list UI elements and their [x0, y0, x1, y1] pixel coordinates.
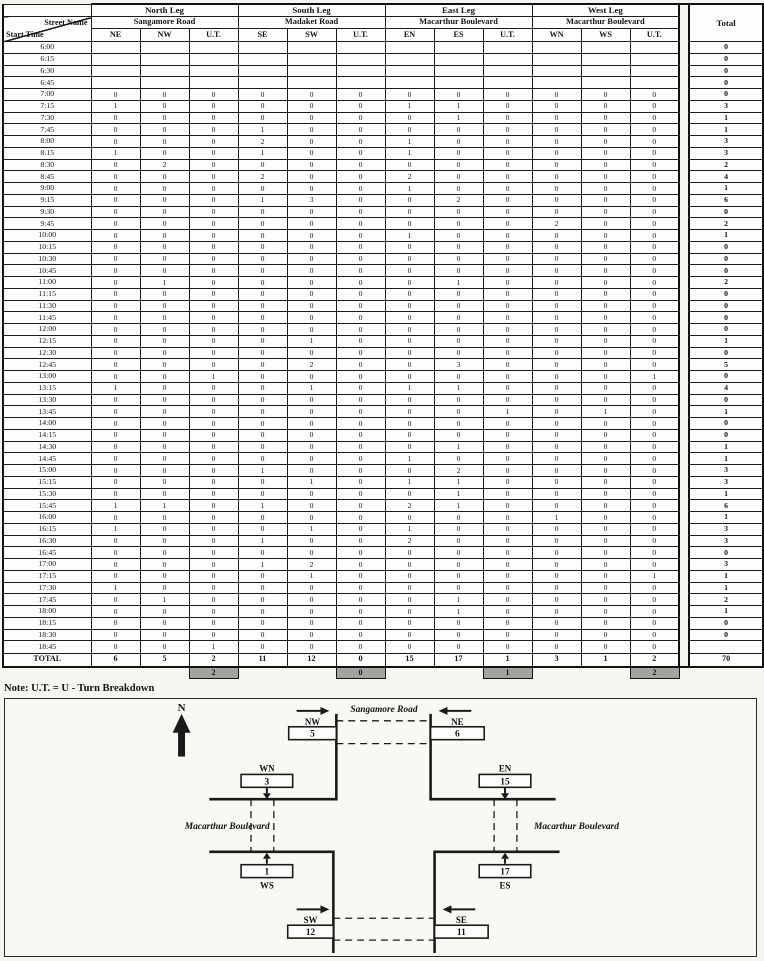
count-cell: 0	[140, 570, 189, 582]
count-cell: 0	[287, 394, 336, 406]
count-row: 12:450000200300005	[3, 359, 763, 371]
intersection-diagram-svg: N Sangamore Road Macarthur Boulevard Mac…	[5, 699, 753, 953]
count-cell: 0	[385, 629, 434, 641]
count-row: 11:450000000000000	[3, 312, 763, 324]
count-cell	[336, 42, 385, 54]
count-cell: 0	[336, 312, 385, 324]
count-cell: 0	[385, 606, 434, 618]
count-cell: 0	[483, 300, 532, 312]
corner-blank-cell	[3, 4, 91, 17]
count-cell: 0	[385, 159, 434, 171]
count-cell: 0	[385, 194, 434, 206]
count-cell: 0	[630, 453, 679, 465]
count-cell: 0	[140, 617, 189, 629]
count-cell: 0	[91, 288, 140, 300]
count-row: 8:450002002000004	[3, 171, 763, 183]
row-total-cell: 1	[689, 512, 763, 524]
count-cell: 0	[287, 206, 336, 218]
count-cell: 2	[287, 559, 336, 571]
count-cell: 0	[189, 89, 238, 101]
column-gap	[679, 194, 689, 206]
count-cell: 0	[238, 629, 287, 641]
count-cell: 0	[532, 582, 581, 594]
count-cell: 0	[336, 277, 385, 289]
count-cell: 0	[238, 418, 287, 430]
count-cell: 1	[434, 594, 483, 606]
row-total-cell: 3	[689, 136, 763, 148]
row-total-cell: 2	[689, 277, 763, 289]
row-total-cell: 4	[689, 382, 763, 394]
count-cell: 0	[91, 418, 140, 430]
count-cell: 0	[287, 418, 336, 430]
count-table: North Leg South Leg East Leg West Leg To…	[2, 3, 764, 679]
north-street-header: Sangamore Road	[91, 17, 238, 29]
start-time-cell: 7:15	[3, 100, 91, 112]
count-cell: 0	[483, 523, 532, 535]
count-cell: 0	[189, 394, 238, 406]
count-cell: 1	[140, 277, 189, 289]
row-total-cell: 0	[689, 629, 763, 641]
count-cell: 0	[630, 265, 679, 277]
count-cell: 0	[336, 488, 385, 500]
count-cell: 0	[483, 253, 532, 265]
count-row: 15:300000000100001	[3, 488, 763, 500]
count-cell: 0	[91, 512, 140, 524]
count-cell: 0	[238, 183, 287, 195]
count-cell: 0	[238, 488, 287, 500]
count-cell: 0	[630, 394, 679, 406]
count-cell	[238, 65, 287, 77]
count-cell: 1	[385, 183, 434, 195]
count-cell: 0	[385, 547, 434, 559]
count-cell	[238, 42, 287, 54]
count-cell: 0	[483, 147, 532, 159]
count-cell: 0	[532, 617, 581, 629]
count-cell: 0	[483, 476, 532, 488]
count-cell: 0	[630, 183, 679, 195]
ne-count-box: NE 6	[431, 707, 485, 740]
column-gap	[679, 653, 689, 667]
column-total-cell: 12	[287, 653, 336, 667]
count-cell	[483, 42, 532, 54]
count-cell	[581, 42, 630, 54]
count-cell: 0	[189, 382, 238, 394]
count-cell: 0	[532, 288, 581, 300]
count-cell: 0	[630, 300, 679, 312]
column-gap	[679, 606, 689, 618]
count-row: 12:000000000000000	[3, 324, 763, 336]
count-cell	[434, 65, 483, 77]
count-cell: 0	[581, 371, 630, 383]
count-cell: 0	[434, 559, 483, 571]
count-cell: 0	[630, 582, 679, 594]
count-cell: 0	[189, 312, 238, 324]
start-time-cell: 8:30	[3, 159, 91, 171]
count-cell: 0	[483, 629, 532, 641]
count-cell: 0	[336, 523, 385, 535]
count-cell: 0	[581, 277, 630, 289]
count-cell: 0	[140, 206, 189, 218]
count-cell: 0	[336, 617, 385, 629]
count-cell: 0	[140, 465, 189, 477]
count-cell: 0	[189, 406, 238, 418]
start-time-cell: 12:45	[3, 359, 91, 371]
count-cell: 1	[91, 382, 140, 394]
count-cell: 0	[238, 441, 287, 453]
count-cell: 0	[385, 300, 434, 312]
count-cell	[434, 42, 483, 54]
nw-direction-arrow-icon	[320, 707, 329, 715]
intersection-diagram: N Sangamore Road Macarthur Boulevard Mac…	[4, 698, 757, 957]
count-cell: 0	[140, 147, 189, 159]
count-cell: 0	[483, 335, 532, 347]
count-cell	[287, 53, 336, 65]
count-cell: 0	[238, 112, 287, 124]
start-time-cell: 10:00	[3, 230, 91, 242]
row-total-cell: 1	[689, 606, 763, 618]
north-arrow-head	[173, 714, 191, 733]
count-cell: 0	[189, 112, 238, 124]
count-cell: 0	[189, 171, 238, 183]
start-time-cell: 17:45	[3, 594, 91, 606]
count-cell: 0	[336, 265, 385, 277]
count-cell: 0	[581, 241, 630, 253]
count-cell: 0	[91, 312, 140, 324]
column-gap	[679, 53, 689, 65]
count-cell: 0	[532, 394, 581, 406]
count-cell: 0	[238, 89, 287, 101]
count-cell: 0	[287, 312, 336, 324]
count-cell: 0	[630, 100, 679, 112]
count-cell	[287, 65, 336, 77]
start-time-cell: 18:45	[3, 641, 91, 653]
count-cell: 0	[287, 89, 336, 101]
count-cell: 0	[336, 629, 385, 641]
start-time-cell: 11:45	[3, 312, 91, 324]
count-cell: 0	[287, 253, 336, 265]
count-cell: 0	[287, 218, 336, 230]
count-cell: 0	[581, 476, 630, 488]
start-time-cell: 6:00	[3, 42, 91, 54]
count-cell: 0	[189, 441, 238, 453]
count-cell: 0	[238, 382, 287, 394]
start-time-cell: 12:00	[3, 324, 91, 336]
count-cell	[630, 42, 679, 54]
count-cell: 0	[581, 594, 630, 606]
count-cell: 0	[336, 206, 385, 218]
count-cell: 0	[532, 312, 581, 324]
count-cell: 0	[91, 335, 140, 347]
count-cell	[91, 77, 140, 89]
count-cell: 0	[581, 570, 630, 582]
column-gap	[679, 147, 689, 159]
count-cell: 0	[630, 594, 679, 606]
row-total-cell: 1	[689, 441, 763, 453]
count-cell: 0	[336, 124, 385, 136]
count-cell: 0	[140, 265, 189, 277]
count-cell: 0	[581, 641, 630, 653]
count-row: 13:450000000010101	[3, 406, 763, 418]
count-cell: 0	[336, 100, 385, 112]
count-cell: 0	[140, 89, 189, 101]
count-cell: 0	[287, 277, 336, 289]
count-cell: 0	[91, 253, 140, 265]
count-cell: 0	[532, 206, 581, 218]
count-cell: 1	[91, 100, 140, 112]
count-cell: 0	[336, 230, 385, 242]
count-cell: 1	[238, 124, 287, 136]
count-cell: 1	[385, 453, 434, 465]
count-cell: 0	[434, 570, 483, 582]
count-row: 12:150000100000001	[3, 335, 763, 347]
count-cell: 0	[630, 441, 679, 453]
count-cell: 0	[532, 171, 581, 183]
count-cell: 0	[532, 241, 581, 253]
count-cell: 0	[189, 300, 238, 312]
count-cell: 0	[532, 523, 581, 535]
count-cell: 0	[189, 629, 238, 641]
column-total-cell: 2	[189, 653, 238, 667]
count-cell: 0	[483, 418, 532, 430]
count-cell: 0	[238, 606, 287, 618]
column-gap	[679, 441, 689, 453]
count-cell: 0	[532, 606, 581, 618]
start-time-cell: 13:00	[3, 371, 91, 383]
es-count-value: 17	[500, 868, 510, 878]
count-cell: 0	[483, 594, 532, 606]
count-cell: 0	[238, 641, 287, 653]
count-cell: 0	[91, 617, 140, 629]
count-cell: 0	[238, 359, 287, 371]
column-total-cell: 3	[532, 653, 581, 667]
count-cell: 0	[630, 324, 679, 336]
row-total-cell: 0	[689, 89, 763, 101]
count-cell: 0	[581, 136, 630, 148]
es-label: ES	[500, 881, 511, 891]
count-cell: 0	[336, 418, 385, 430]
count-cell	[532, 65, 581, 77]
count-cell: 1	[385, 476, 434, 488]
count-row: 18:150000000000000	[3, 617, 763, 629]
count-row: 17:450100000100002	[3, 594, 763, 606]
count-row: 15:451101002100006	[3, 500, 763, 512]
count-cell: 0	[532, 371, 581, 383]
count-cell: 0	[140, 241, 189, 253]
count-cell: 0	[532, 159, 581, 171]
count-cell: 0	[238, 570, 287, 582]
count-cell: 0	[532, 324, 581, 336]
column-gap	[679, 42, 689, 54]
col-header-s-ut: U.T.	[336, 29, 385, 42]
count-cell: 0	[532, 347, 581, 359]
count-cell: 0	[238, 100, 287, 112]
column-gap	[679, 159, 689, 171]
column-gap	[679, 312, 689, 324]
column-gap	[679, 465, 689, 477]
row-total-cell: 0	[689, 429, 763, 441]
count-cell: 1	[238, 194, 287, 206]
count-cell	[140, 65, 189, 77]
count-cell: 0	[630, 629, 679, 641]
count-cell: 0	[140, 629, 189, 641]
count-cell: 1	[385, 136, 434, 148]
count-cell: 1	[91, 523, 140, 535]
start-time-cell: 15:30	[3, 488, 91, 500]
count-cell: 0	[140, 253, 189, 265]
count-cell: 0	[385, 641, 434, 653]
row-total-cell: 0	[689, 418, 763, 430]
count-cell: 0	[336, 183, 385, 195]
count-cell: 0	[189, 206, 238, 218]
count-cell: 0	[434, 171, 483, 183]
sw-count-value: 12	[306, 928, 316, 938]
count-cell: 0	[140, 100, 189, 112]
count-row: 13:151000101100004	[3, 382, 763, 394]
count-cell: 0	[189, 230, 238, 242]
count-cell: 0	[630, 406, 679, 418]
count-cell: 3	[434, 359, 483, 371]
count-cell: 0	[532, 382, 581, 394]
row-total-cell: 1	[689, 112, 763, 124]
count-cell: 0	[385, 465, 434, 477]
count-cell: 0	[434, 89, 483, 101]
count-cell	[483, 53, 532, 65]
count-cell: 0	[434, 265, 483, 277]
count-cell: 0	[189, 594, 238, 606]
column-total-cell: 6	[91, 653, 140, 667]
count-cell: 0	[238, 394, 287, 406]
count-row: 18:000000000100001	[3, 606, 763, 618]
start-time-cell: 7:45	[3, 124, 91, 136]
count-cell: 0	[287, 147, 336, 159]
count-cell: 0	[287, 124, 336, 136]
count-cell: 0	[91, 218, 140, 230]
count-cell: 0	[140, 382, 189, 394]
column-gap	[679, 382, 689, 394]
count-cell: 0	[140, 441, 189, 453]
count-cell: 1	[189, 371, 238, 383]
start-time-cell: 11:30	[3, 300, 91, 312]
count-cell: 1	[434, 488, 483, 500]
count-cell: 1	[434, 277, 483, 289]
column-gap	[679, 523, 689, 535]
se-label: SE	[456, 915, 467, 925]
column-gap	[679, 112, 689, 124]
count-cell: 0	[483, 230, 532, 242]
count-cell	[581, 77, 630, 89]
count-cell: 0	[189, 136, 238, 148]
count-row: 10:300000000000000	[3, 253, 763, 265]
count-cell: 0	[532, 594, 581, 606]
count-cell: 0	[483, 512, 532, 524]
count-row: 13:000010000000010	[3, 371, 763, 383]
count-cell: 0	[91, 488, 140, 500]
count-cell: 0	[483, 582, 532, 594]
count-cell: 0	[532, 406, 581, 418]
count-cell: 0	[483, 241, 532, 253]
count-cell: 0	[287, 230, 336, 242]
count-cell: 0	[189, 288, 238, 300]
column-gap	[679, 77, 689, 89]
count-cell: 0	[483, 617, 532, 629]
south-street-header: Madaket Road	[238, 17, 385, 29]
count-cell: 0	[189, 453, 238, 465]
total-row-label: TOTAL	[3, 653, 91, 667]
row-total-cell: 4	[689, 171, 763, 183]
count-cell: 0	[483, 429, 532, 441]
column-gap	[679, 629, 689, 641]
count-cell: 0	[336, 476, 385, 488]
column-total-cell: 0	[336, 653, 385, 667]
count-row: 16:450000000000000	[3, 547, 763, 559]
count-cell: 0	[630, 359, 679, 371]
count-cell: 3	[287, 194, 336, 206]
count-cell: 0	[581, 347, 630, 359]
count-cell: 0	[434, 394, 483, 406]
column-gap	[679, 641, 689, 653]
count-cell: 0	[630, 347, 679, 359]
sw-direction-arrow-icon	[320, 905, 329, 913]
count-row: 9:300000000000000	[3, 206, 763, 218]
count-cell: 1	[287, 523, 336, 535]
count-cell: 0	[238, 512, 287, 524]
count-cell: 1	[238, 500, 287, 512]
column-gap	[679, 124, 689, 136]
count-cell: 0	[581, 194, 630, 206]
count-cell: 0	[140, 359, 189, 371]
count-cell: 0	[483, 465, 532, 477]
count-cell: 0	[140, 453, 189, 465]
column-gap	[679, 300, 689, 312]
count-cell: 0	[91, 194, 140, 206]
east-street-header: Macarthur Boulevard	[385, 17, 532, 29]
count-cell: 0	[91, 406, 140, 418]
se-count-box: SE 11	[435, 905, 489, 938]
count-cell: 0	[336, 371, 385, 383]
count-cell	[140, 42, 189, 54]
count-cell: 0	[532, 253, 581, 265]
count-cell: 2	[140, 159, 189, 171]
west-leg-header: West Leg	[532, 4, 679, 17]
count-cell: 0	[483, 500, 532, 512]
row-total-cell	[689, 641, 763, 653]
count-cell: 0	[581, 512, 630, 524]
count-cell: 0	[140, 218, 189, 230]
count-cell: 0	[287, 488, 336, 500]
count-cell: 0	[434, 230, 483, 242]
north-arrow-shaft	[178, 731, 185, 757]
count-row: 8:000002001000003	[3, 136, 763, 148]
count-cell: 0	[238, 371, 287, 383]
column-gap	[679, 206, 689, 218]
count-cell: 0	[140, 194, 189, 206]
count-cell: 0	[140, 183, 189, 195]
count-cell: 0	[336, 89, 385, 101]
count-cell: 0	[189, 570, 238, 582]
count-cell: 0	[630, 488, 679, 500]
count-cell: 0	[336, 394, 385, 406]
start-time-cell: 6:15	[3, 53, 91, 65]
count-cell: 0	[287, 100, 336, 112]
count-cell	[287, 77, 336, 89]
count-cell: 0	[336, 500, 385, 512]
count-cell: 0	[385, 347, 434, 359]
count-cell: 0	[336, 335, 385, 347]
count-cell: 0	[532, 429, 581, 441]
count-cell	[385, 77, 434, 89]
count-cell: 0	[532, 136, 581, 148]
count-cell: 0	[581, 89, 630, 101]
